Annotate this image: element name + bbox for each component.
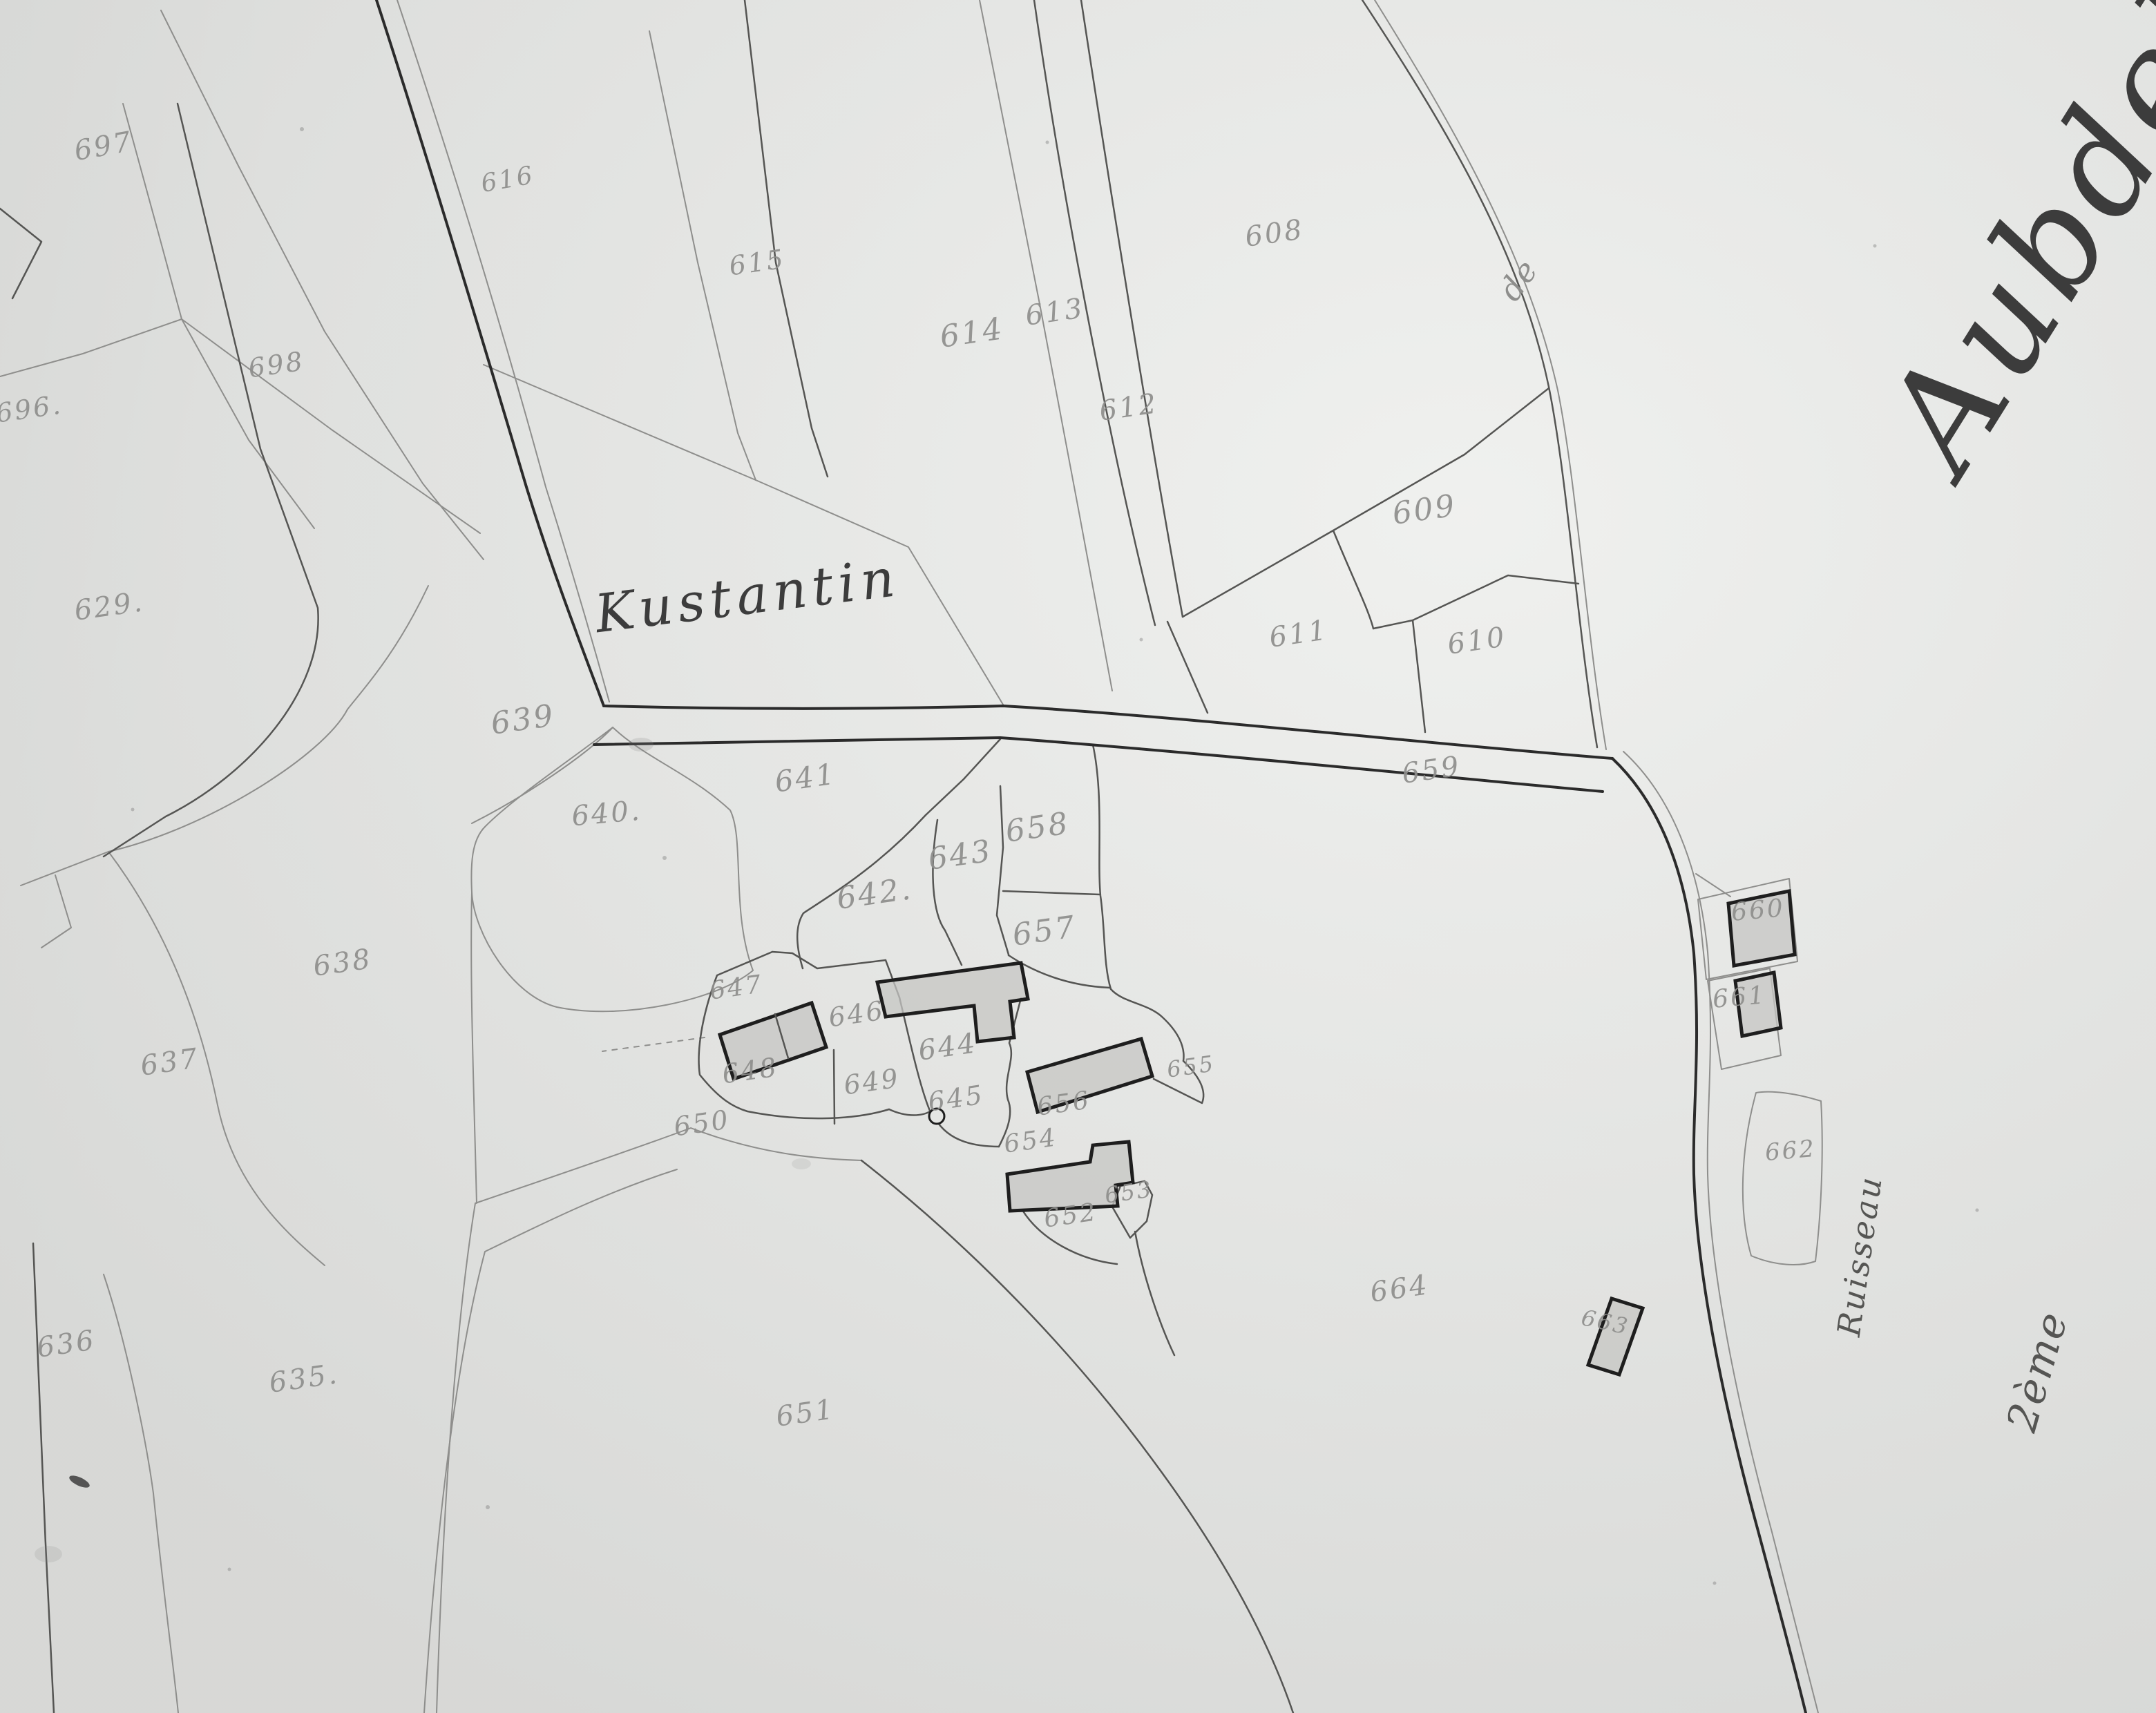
parcel-label-614: 614	[937, 311, 1006, 354]
script-label-corner-script: Aubdel	[1853, 0, 2156, 497]
parcel-label-654: 654	[1002, 1123, 1060, 1158]
parcel-label-629: 629.	[73, 586, 146, 627]
parcel-label-646: 646	[827, 995, 887, 1033]
parcel-label-638: 638	[312, 943, 374, 982]
parcel-label-698: 698	[247, 346, 307, 384]
parcel-label-635: 635.	[267, 1358, 341, 1399]
parcel-label-649: 649	[842, 1063, 902, 1101]
parcel-label-652: 652	[1042, 1198, 1100, 1233]
parcel-label-657: 657	[1010, 909, 1078, 953]
parcel-label-610: 610	[1446, 621, 1509, 660]
parcel-label-641: 641	[772, 757, 838, 799]
parcel-label-658: 658	[1003, 805, 1071, 849]
parcel-label-655: 655	[1165, 1050, 1217, 1082]
parcel-label-653: 653	[1103, 1176, 1155, 1208]
parcel-label-639: 639	[488, 698, 557, 741]
cadastral-map-sheet: 697696.698616615614613612608609611610629…	[0, 0, 2156, 1713]
parcel-label-636: 636	[35, 1324, 98, 1363]
parcel-label-650: 650	[672, 1104, 732, 1142]
parcel-label-642: 642.	[834, 871, 915, 917]
parcel-label-616: 616	[479, 161, 537, 198]
parcel-label-608: 608	[1243, 213, 1306, 253]
script-label-stream-name: Ruisseau	[1830, 1173, 1889, 1339]
parcel-label-645: 645	[926, 1080, 986, 1118]
parcel-label-662: 662	[1764, 1135, 1817, 1167]
script-label-place-name: Kustantin	[591, 546, 903, 644]
parcel-label-696: 696.	[0, 389, 64, 428]
parcel-label-663: 663	[1579, 1304, 1632, 1340]
parcel-label-615: 615	[727, 244, 788, 282]
parcel-label-664: 664	[1368, 1269, 1431, 1308]
parcel-label-637: 637	[139, 1042, 202, 1082]
parcel-label-661: 661	[1712, 981, 1768, 1014]
parcel-label-660: 660	[1730, 894, 1786, 927]
parcel-label-643: 643	[926, 833, 994, 877]
parcel-label-647: 647	[708, 970, 765, 1005]
parcel-label-656: 656	[1036, 1086, 1093, 1121]
parcel-label-648: 648	[721, 1052, 781, 1090]
parcel-label-611: 611	[1268, 614, 1330, 653]
parcel-label-612: 612	[1098, 387, 1161, 427]
parcel-label-697: 697	[72, 126, 135, 167]
parcel-label-609: 609	[1390, 488, 1458, 531]
map-labels: 697696.698616615614613612608609611610629…	[0, 0, 2156, 1713]
parcel-label-644: 644	[917, 1027, 980, 1066]
parcel-label-659: 659	[1400, 750, 1463, 789]
parcel-label-640: 640.	[571, 795, 643, 833]
script-label-section-number: 2ème	[1998, 1305, 2078, 1437]
parcel-label-651: 651	[774, 1393, 837, 1433]
script-label-de: de	[1491, 252, 1545, 308]
parcel-label-613: 613	[1024, 292, 1087, 332]
